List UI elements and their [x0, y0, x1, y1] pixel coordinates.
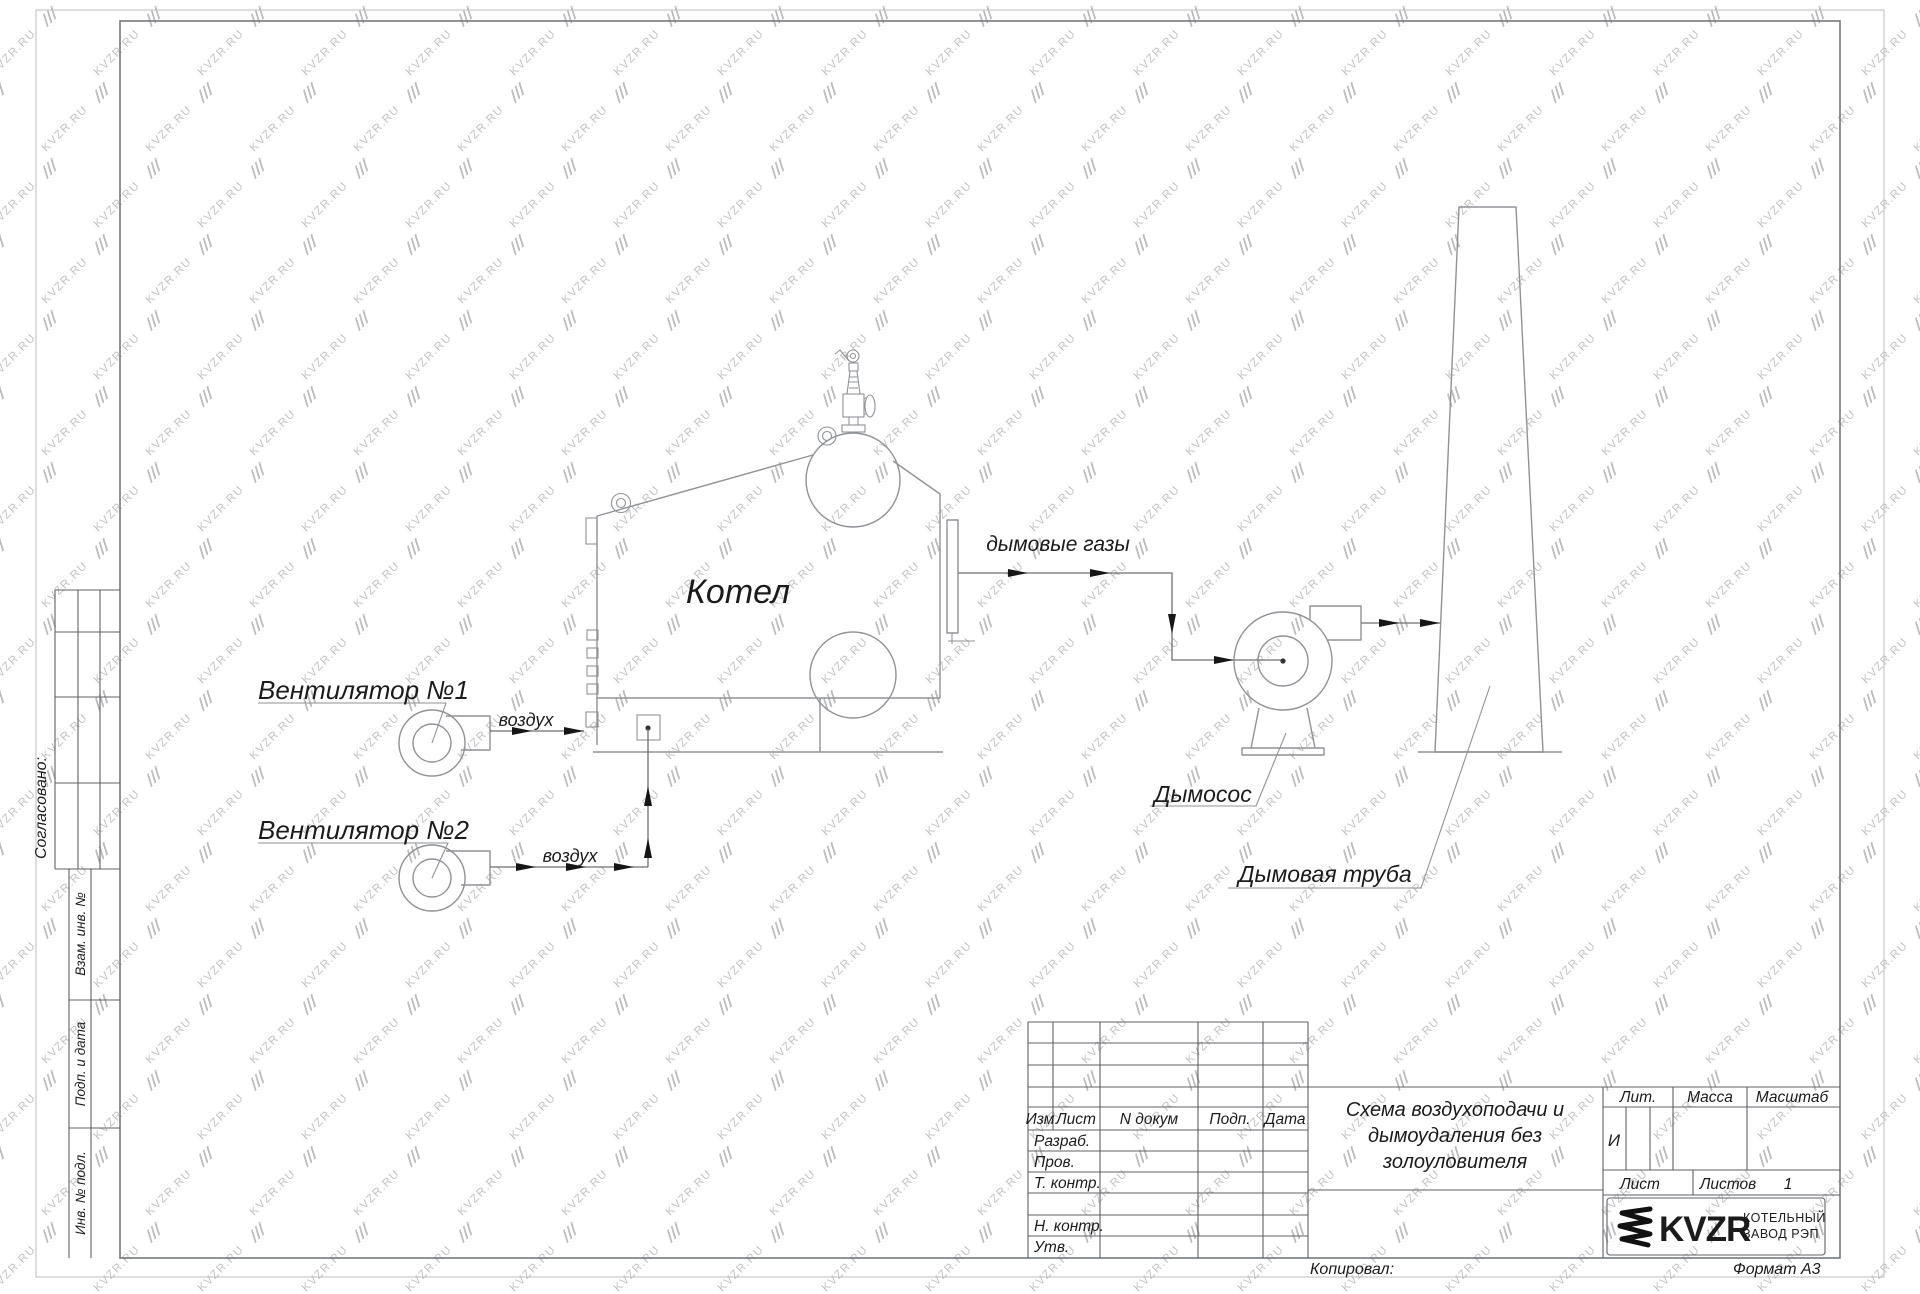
- row-developed: Разраб.: [1034, 1133, 1090, 1150]
- col-date: Дата: [1263, 1111, 1306, 1128]
- air1-label: воздух: [499, 710, 555, 730]
- chimney-leader: [1228, 686, 1490, 888]
- fan1-label: Вентилятор №1: [258, 675, 469, 705]
- doc-title-line1: Схема воздухоподачи и: [1346, 1099, 1564, 1121]
- smoke-exhauster: Дымосос: [1150, 606, 1440, 807]
- sheets-label: Листов: [1699, 1176, 1756, 1193]
- title-block: Изм Лист N докум Подп. Дата Разраб. Пров…: [1026, 1022, 1840, 1278]
- lifting-lug-left-hole: [617, 499, 626, 508]
- boiler: Котел: [586, 350, 975, 752]
- flue-gas-line: дымовые газы: [958, 533, 1281, 664]
- company-name-line2: ЗАВОД РЭП: [1743, 1227, 1819, 1241]
- exhauster-center-dot: [1280, 658, 1285, 663]
- boiler-drum-circle: [806, 433, 900, 527]
- copied-by-label: Копировал:: [1310, 1261, 1394, 1278]
- arrowhead: [1168, 614, 1176, 634]
- safety-valve: [835, 350, 875, 432]
- row-ncontrol: Н. контр.: [1034, 1218, 1104, 1235]
- arrowhead: [1420, 619, 1440, 627]
- arrowhead: [1008, 569, 1028, 577]
- air2-label: воздух: [543, 846, 599, 866]
- exhauster-base: [1242, 748, 1324, 755]
- coil-logo-icon: [1620, 1209, 1650, 1245]
- fan1-outlet-duct: [446, 716, 490, 750]
- boiler-wall-fittings: [586, 518, 598, 727]
- exhauster-outlet-duct: [1310, 606, 1361, 640]
- sheets-value: 1: [1784, 1176, 1793, 1193]
- replacement-inv-label: Взам. инв. №: [73, 892, 88, 976]
- row-checked: Пров.: [1034, 1154, 1075, 1171]
- col-izm: Изм: [1026, 1111, 1055, 1128]
- row-approved: Утв.: [1033, 1239, 1069, 1256]
- flue-gases-label: дымовые газы: [986, 533, 1130, 556]
- fan-2: Вентилятор №2: [258, 815, 490, 911]
- chimney-body: [1435, 207, 1543, 752]
- col-sign: Подп.: [1209, 1111, 1250, 1128]
- arrowhead: [644, 786, 652, 806]
- fan-1: Вентилятор №1: [258, 675, 490, 776]
- sign-date-label: Подп. и дата: [73, 1021, 88, 1106]
- air-flow-lines: воздух воздух: [490, 710, 652, 871]
- lit-header: Лит.: [1619, 1089, 1656, 1106]
- boiler-label: Котел: [686, 573, 790, 611]
- drawing-frame: [120, 21, 1840, 1258]
- arrowhead: [644, 838, 652, 858]
- doc-title-line3: золоуловителя: [1382, 1151, 1528, 1173]
- inv-original-label: Инв. № подл.: [73, 1151, 88, 1235]
- arrowhead: [1214, 656, 1234, 664]
- fan2-outlet-duct: [446, 851, 490, 885]
- arrowhead: [1379, 619, 1399, 627]
- mass-header: Масса: [1687, 1089, 1733, 1106]
- doc-title-line2: дымоудаления без: [1368, 1125, 1542, 1147]
- lifting-lug-right: [818, 427, 836, 445]
- format-label: Формат А3: [1733, 1261, 1821, 1278]
- arrowhead: [614, 863, 634, 871]
- flue-outlet-flange: [947, 520, 975, 644]
- company-logo: KVZR КОТЕЛЬНЫЙ ЗАВОД РЭП: [1607, 1198, 1826, 1255]
- agreed-label: Согласовано:: [33, 757, 50, 859]
- fan2-label: Вентилятор №2: [258, 815, 469, 845]
- col-doc: N докум: [1120, 1111, 1179, 1128]
- col-list: Лист: [1055, 1111, 1096, 1128]
- scale-header: Масштаб: [1756, 1089, 1830, 1106]
- fan2-leader: [258, 843, 448, 878]
- boiler-burner-circle: [810, 632, 896, 718]
- arrowhead: [516, 863, 536, 871]
- exhauster-pedestal: [1251, 708, 1315, 748]
- sheet-label: Лист: [1619, 1176, 1660, 1193]
- schematic-drawing-sheet: Согласовано: Взам. инв. № Подп. и дата И…: [0, 0, 1920, 1280]
- arrowhead: [1090, 569, 1110, 577]
- lifting-lug-right-hole: [823, 432, 832, 441]
- flue-line: [958, 573, 1281, 660]
- chimney: Дымовая труба: [1228, 207, 1562, 888]
- chimney-label: Дымовая труба: [1235, 861, 1411, 887]
- lit-value: И: [1608, 1131, 1621, 1150]
- arrowhead: [564, 727, 584, 735]
- row-tcontrol: Т. контр.: [1034, 1175, 1101, 1192]
- company-name-line1: КОТЕЛЬНЫЙ: [1743, 1210, 1826, 1225]
- exhauster-label: Дымосос: [1151, 781, 1252, 807]
- left-attribute-strip: Согласовано: Взам. инв. № Подп. и дата И…: [33, 590, 120, 1258]
- fan1-leader: [258, 703, 446, 743]
- logo-wordmark: KVZR: [1659, 1210, 1751, 1249]
